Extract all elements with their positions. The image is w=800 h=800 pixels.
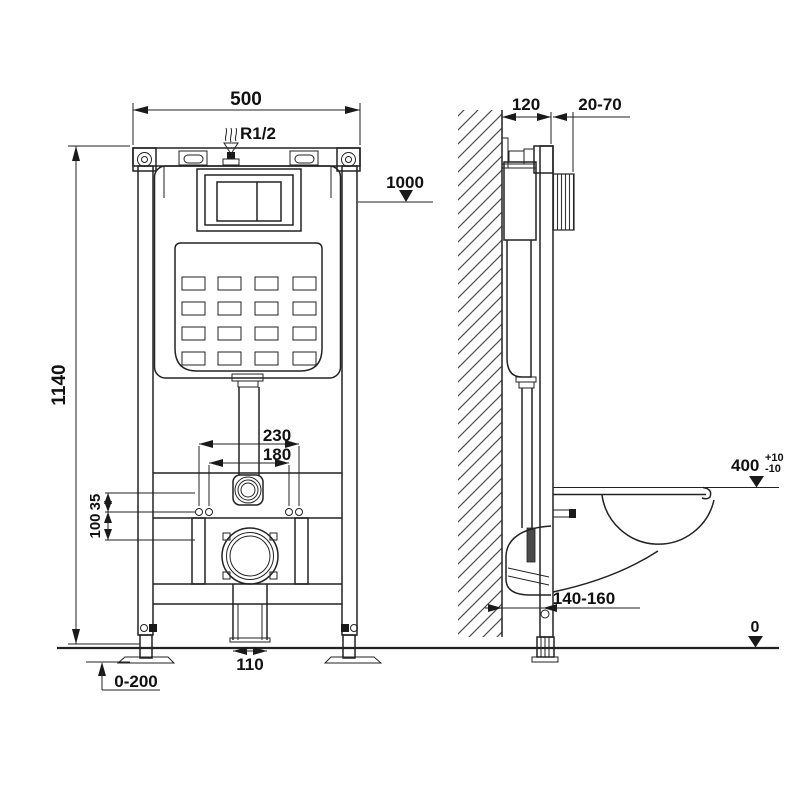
dim-drain-wall-distance: 140-160 [485, 589, 640, 612]
drain-socket [222, 528, 278, 642]
fixing-hole-icon [541, 610, 549, 618]
level-marker-triangle-icon [749, 476, 764, 488]
dim-offsets-35-100: 35 100 [87, 493, 195, 540]
dim-label-foot-adjust: 0-200 [114, 672, 157, 691]
corner-screw-icon [342, 153, 356, 167]
dim-seat-height: 400 +10 -10 [731, 452, 784, 488]
dim-label-drain-wall-distance: 140-160 [553, 589, 615, 608]
fixing-hole-icon [196, 509, 203, 516]
water-supply-symbol [223, 128, 239, 165]
installation-drawing: 500 R1/2 1140 1000 230 [0, 0, 800, 800]
foot-side [532, 610, 558, 662]
dim-label-offset-100: 100 [87, 513, 104, 538]
bracket-bolt-icon [509, 151, 524, 162]
dim-label-floor-level: 0 [751, 619, 760, 636]
dual-flush-buttons-icon [217, 182, 281, 221]
dim-label-bolt-span-outer: 230 [263, 426, 291, 445]
dim-foot-adjust: 0-200 [86, 662, 160, 691]
dim-label-frame-depth: 120 [512, 95, 540, 114]
hanger-slot-icon [184, 155, 203, 163]
cistern [155, 166, 341, 378]
fixing-hole-icon [286, 509, 293, 516]
fixing-hole-icon [206, 509, 213, 516]
hanger-slot-icon [295, 155, 314, 163]
dim-label-supply-thread: R1/2 [240, 124, 276, 143]
dim-label-total-height: 1140 [49, 364, 70, 405]
dim-label-seat-height: 400 [731, 456, 759, 475]
dim-label-seat-tol-minus: -10 [765, 463, 781, 475]
dim-bolt-span-outer: 230 [199, 426, 299, 506]
dim-label-bolt-span-inner: 180 [263, 445, 291, 464]
flush-bend [506, 526, 551, 595]
frame-rail-side [540, 146, 553, 637]
dim-level-1000: 1000 [358, 173, 433, 202]
dim-label-level-1000: 1000 [386, 173, 424, 192]
dim-floor-level: 0 [748, 619, 763, 648]
dim-label-drain-pipe-width: 110 [236, 655, 263, 674]
flush-plate-window [197, 169, 301, 231]
level-marker-triangle-icon [748, 636, 763, 648]
side-view [458, 110, 779, 662]
dim-frame-depth: 120 20-70 [502, 95, 630, 172]
wall-section-hatch [458, 110, 502, 637]
fixing-rod-icon [553, 510, 571, 517]
dim-total-height: 1140 [49, 146, 140, 644]
corner-screw-icon [138, 153, 152, 167]
front-view [118, 128, 381, 663]
dim-label-plate-depth: 20-70 [578, 95, 621, 114]
dim-label-front-width: 500 [230, 89, 262, 110]
flush-pipe [232, 374, 263, 475]
dimensions: 500 R1/2 1140 1000 230 [49, 89, 784, 691]
fixing-hole-icon [296, 509, 303, 516]
cistern-side-profile [504, 162, 536, 528]
inlet-connection [233, 475, 263, 505]
protection-plate-grid [175, 243, 322, 371]
dim-label-offset-35: 35 [87, 494, 104, 511]
flush-plate-side-section [553, 174, 574, 230]
technical-drawing-canvas: 500 R1/2 1140 1000 230 [0, 0, 800, 800]
dim-drain-pipe-width: 110 [233, 647, 267, 674]
toilet-bowl-profile [553, 488, 779, 593]
